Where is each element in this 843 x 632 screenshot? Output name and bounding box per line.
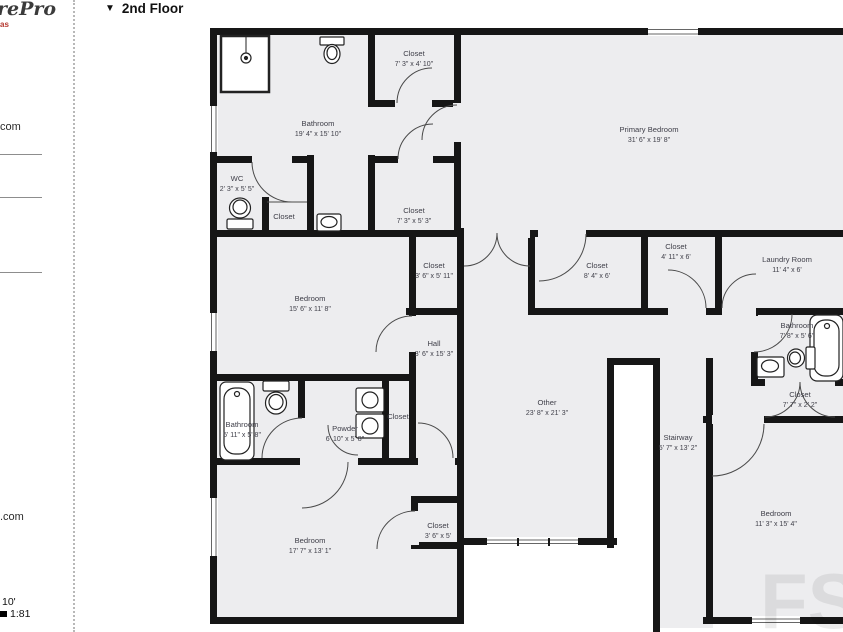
room-label: Primary Bedroom: [619, 125, 678, 134]
toilet-left: [263, 381, 289, 414]
room-dims: 7' 3" x 4' 10": [395, 61, 434, 68]
room-label: Closet: [427, 521, 449, 530]
room-label: Closet: [423, 261, 445, 270]
room-label: Closet: [586, 261, 608, 270]
wc-sink: [317, 214, 341, 231]
room-dims: 11' 3" x 15' 4": [755, 521, 797, 528]
room-label: Stairway: [663, 433, 692, 442]
room-dims: 17' 7" x 13' 1": [289, 548, 332, 555]
room-dims: 19' 4" x 15' 10": [295, 131, 342, 138]
room-label: Bathroom: [226, 420, 259, 429]
room-dims: 7' 3" x 5' 3": [397, 218, 432, 225]
room-label: Powder: [332, 424, 358, 433]
room-label: Bedroom: [295, 294, 326, 303]
room-label: Bedroom: [295, 536, 326, 545]
room-dims: 8' 4" x 6': [584, 273, 610, 280]
room-dims: 5' 11" x 5' 8": [223, 432, 261, 439]
room-label: Closet: [403, 49, 425, 58]
room-dims: 15' 6" x 11' 8": [289, 306, 331, 313]
sink-right: [757, 357, 784, 377]
room-label: Closet: [789, 390, 811, 399]
room-dims: 3' 6" x 5' 11": [415, 273, 453, 280]
room-label: Closet: [273, 212, 295, 221]
wc-toilet: [227, 198, 253, 229]
room-label: Laundry Room: [762, 255, 812, 264]
room-dims: 6' 10" x 5' 8": [326, 436, 365, 443]
watermark: FS: [760, 557, 843, 632]
room-label: Bedroom: [761, 509, 792, 518]
room-label: Hall: [427, 339, 440, 348]
floor-plan-canvas: Bathroom 19' 4" x 15' 10" Closet 7' 3" x…: [0, 0, 843, 632]
room-dims: 7' 7" x 2' 2": [783, 402, 818, 409]
room-dims: 31' 6" x 19' 8": [628, 137, 671, 144]
shower: [221, 36, 269, 92]
room-dims: 11' 4" x 6': [772, 267, 802, 274]
room-dims: 3' 6" x 5': [425, 533, 451, 540]
room-dims: 5' 7" x 13' 2": [659, 445, 698, 452]
room-dims: 3' 6" x 15' 3": [415, 351, 454, 358]
room-dims: 7' 8" x 5' 6": [780, 333, 815, 340]
room-dims: 2' 3" x 5' 5": [220, 186, 255, 193]
room-label: Bathroom: [781, 321, 814, 330]
room-label: Closet: [403, 206, 425, 215]
room-label: Closet: [665, 242, 687, 251]
room-label: Bathroom: [302, 119, 335, 128]
room-dims: 4' 11" x 6': [661, 254, 691, 261]
room-dims: 23' 8" x 21' 3": [526, 410, 569, 417]
room-label: WC: [231, 174, 244, 183]
room-label: Other: [538, 398, 557, 407]
toilet-right: [788, 347, 816, 369]
room-label: Closet: [387, 412, 409, 421]
